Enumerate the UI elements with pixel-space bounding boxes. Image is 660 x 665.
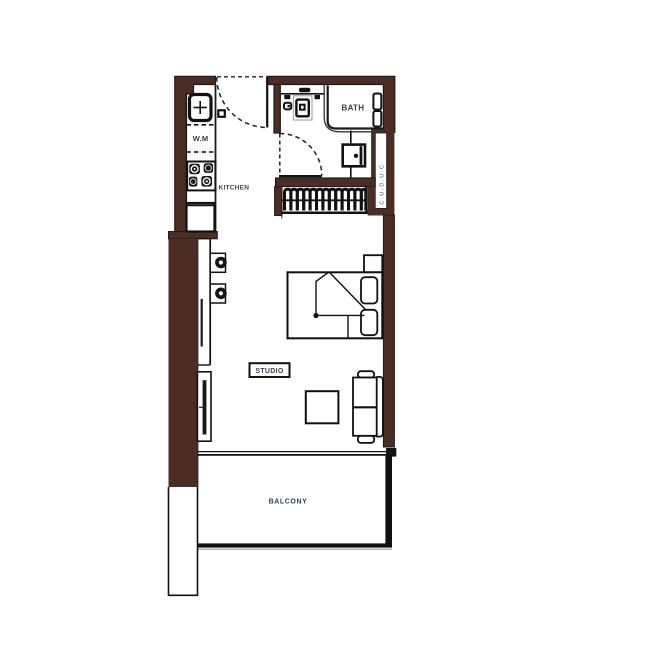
- svg-text:C.U-D.U.C: C.U-D.U.C: [380, 163, 386, 204]
- svg-text:BATH: BATH: [342, 104, 365, 113]
- svg-text:KITCHEN: KITCHEN: [219, 184, 250, 191]
- svg-text:STUDIO: STUDIO: [255, 368, 283, 375]
- svg-text:W.M: W.M: [193, 134, 209, 143]
- svg-text:BALCONY: BALCONY: [269, 498, 308, 505]
